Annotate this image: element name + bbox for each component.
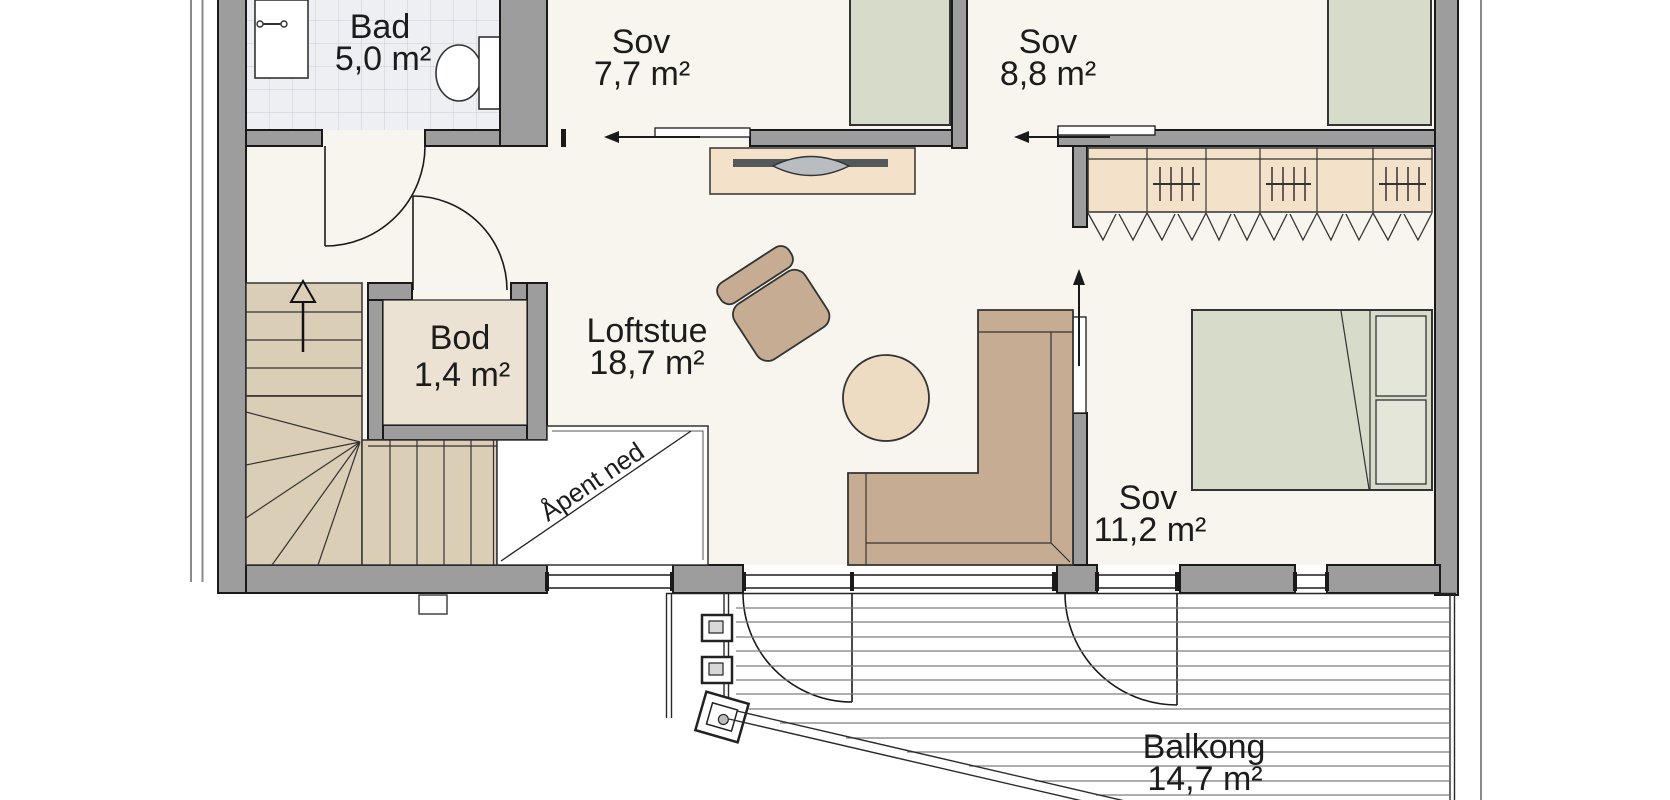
room-area-sov3: 11,2 m²	[1094, 511, 1207, 549]
room-area-bod: 1,4 m²	[414, 356, 510, 394]
wall-bad-bottom-left	[246, 130, 322, 146]
room-label-bod: Bod	[430, 319, 491, 357]
window-2	[1295, 575, 1327, 588]
balcony-right-edge	[1450, 595, 1455, 800]
double-bed	[1192, 310, 1432, 490]
wall-right	[1435, 0, 1458, 595]
wall-sov1-sov2	[952, 0, 967, 148]
bed-sov-88	[1328, 0, 1431, 125]
window-jamb	[742, 572, 746, 591]
room-area-balkong: 14,7 m²	[1147, 760, 1262, 798]
wall-bod-bottom	[383, 425, 527, 440]
window-jamb	[1052, 572, 1056, 591]
railing-post	[702, 615, 732, 641]
bed-sov-77	[850, 0, 950, 125]
window-jamb	[1293, 572, 1297, 591]
exterior-vent	[419, 595, 447, 614]
wall-loft-sov3-lower	[1073, 413, 1087, 565]
wall-bod-right	[527, 283, 547, 440]
tv-sideboard	[710, 148, 915, 194]
side-table	[843, 355, 929, 441]
glazing-sov3-door	[1097, 575, 1177, 588]
room-area-loftstue: 18,7 m²	[589, 344, 704, 382]
wall-sov1-bottom	[750, 130, 952, 146]
wall-bottom-a	[246, 565, 547, 593]
open-to-below-void	[497, 426, 708, 565]
pillow	[1376, 400, 1426, 484]
wall-bod-left	[368, 283, 383, 440]
wall-bod-top-right	[511, 283, 527, 300]
wall-left	[218, 0, 246, 593]
floor-plan: Bad 5,0 m² Sov 7,7 m² Sov 8,8 m² Bod 1,4…	[0, 0, 1670, 800]
wall-bod-top-left	[368, 283, 412, 300]
window-1	[547, 575, 673, 588]
balcony-left-railing	[667, 593, 749, 742]
window-jamb	[1095, 572, 1099, 591]
wall-bottom-post-b	[673, 565, 743, 593]
balcony-diagonal-railing	[729, 711, 1125, 800]
wall-bottom-post-c	[1057, 565, 1097, 593]
window-jamb	[1175, 572, 1179, 591]
sink-counter	[255, 0, 308, 78]
window-jamb	[850, 572, 854, 591]
balcony	[666, 593, 1456, 800]
door-balcony-sov3	[1065, 593, 1177, 705]
wall-bottom-e	[1327, 565, 1440, 593]
room-area-sov2: 8,8 m²	[1000, 55, 1096, 93]
wall-bad-bottom-right	[425, 130, 500, 146]
pillow	[1376, 316, 1426, 396]
floor-plan-canvas: Bad 5,0 m² Sov 7,7 m² Sov 8,8 m² Bod 1,4…	[0, 0, 1670, 800]
window-jamb	[545, 572, 549, 591]
railing-post	[702, 657, 732, 683]
wall-bad-sov1	[500, 0, 547, 146]
window-jamb	[670, 572, 674, 591]
room-area-bad: 5,0 m²	[335, 40, 431, 78]
room-area-sov1: 7,7 m²	[594, 55, 690, 93]
glazing-loftstue	[743, 575, 1054, 588]
wall-bottom-d	[1180, 565, 1295, 593]
door-balcony-loftstue	[743, 593, 852, 702]
corner-post	[695, 692, 748, 743]
window-jamb	[1325, 572, 1329, 591]
wall-loft-sov3-upper	[1073, 146, 1087, 227]
